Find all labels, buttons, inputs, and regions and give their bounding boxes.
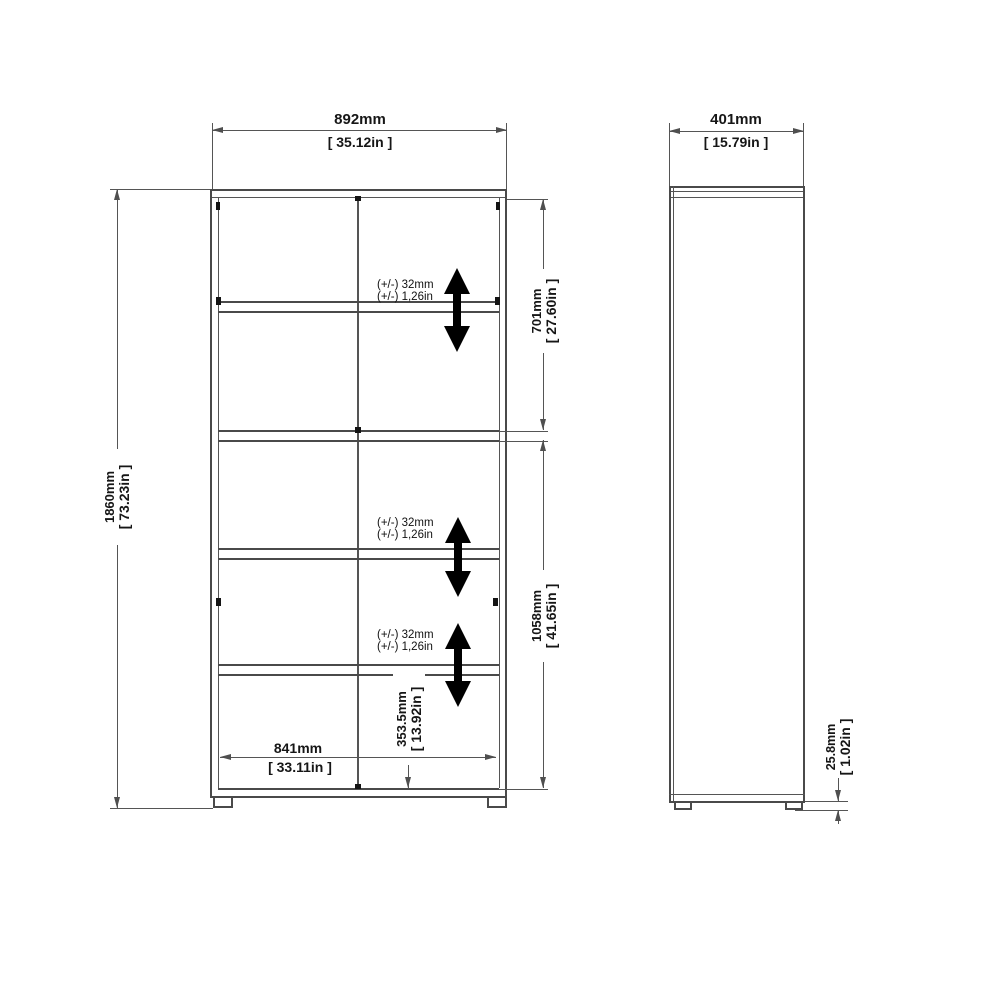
side-top-panel-bottom (669, 197, 805, 198)
front-bottom-edge (210, 796, 507, 798)
upper-section-label-mm: 701mm (529, 269, 544, 353)
shelf-adjust-double-arrow-icon (444, 268, 470, 352)
dimension-line (212, 130, 507, 131)
dimension-line (220, 757, 496, 758)
dimension-arrowhead (793, 128, 804, 134)
arrow-up-head (445, 517, 471, 543)
dimension-arrowhead (212, 127, 223, 133)
front-width-label-in: [ 35.12in ] (310, 134, 410, 150)
shelf-2-top-extension (499, 431, 548, 432)
dimension-arrowhead (496, 127, 507, 133)
shelf-adjust-double-arrow-icon (445, 517, 471, 597)
shelf-adjustment-note-mm: (+/-) 32mm (377, 630, 434, 642)
dimension-arrowhead (540, 419, 546, 430)
front-width-label-mm: 892mm (310, 112, 410, 128)
upper-section-label-in: [ 27.60in ] (544, 269, 559, 353)
lower-section-label: 1058mm [ 41.65in ] (528, 570, 560, 662)
dimension-arrowhead (485, 754, 496, 760)
front-right-outer-edge (505, 189, 507, 796)
arrow-down-head (445, 571, 471, 597)
side-right-outer-edge (803, 186, 805, 803)
shelf-2-fixed-bottom-line (218, 440, 499, 442)
front-right-foot (487, 796, 507, 808)
side-left-foot (674, 801, 692, 810)
shelf-pin-mark (216, 598, 221, 606)
seam-dot-top (355, 196, 361, 201)
side-top-panel-line (669, 191, 805, 192)
lower-section-label-in: [ 41.65in ] (544, 570, 559, 662)
dimension-arrowhead (220, 754, 231, 760)
inner-width-label-mm: 841mm (248, 741, 348, 755)
shelf-adjustment-note-in: (+/-) 1,26in (377, 292, 434, 304)
side-left-outer-edge (669, 186, 671, 803)
bottom-compartment-label: 353.5mm [ 13.92in ] (393, 673, 425, 765)
front-height-label-mm: 1860mm (102, 449, 117, 545)
shelf-pin-mark (216, 202, 220, 210)
dimension-line (669, 131, 804, 132)
lower-section-label-mm: 1058mm (529, 570, 544, 662)
seam-dot-middle (355, 427, 361, 433)
side-right-foot (785, 801, 803, 810)
bookcase-dimension-drawing: 892mm [ 35.12in ] 1860mm [ 73.23in ] 701… (0, 0, 1000, 1000)
shelf-adjustment-note-in: (+/-) 1,26in (377, 530, 434, 542)
arrow-up-head (445, 623, 471, 649)
shelf-adjustment-note-mm: (+/-) 32mm (377, 518, 434, 530)
side-depth-label-in: [ 15.79in ] (686, 134, 786, 150)
arrow-down-head (445, 681, 471, 707)
dimension-arrowhead (114, 189, 120, 200)
bottom-compartment-label-in: [ 13.92in ] (409, 673, 424, 765)
front-back-panel-seam (357, 197, 359, 788)
dimension-arrowhead (540, 199, 546, 210)
shelf-pin-mark (216, 297, 221, 305)
side-top-edge (669, 186, 805, 188)
arrow-stem (453, 292, 461, 328)
shelf-adjust-double-arrow-icon (445, 623, 471, 707)
shelf-adjustment-note-1: (+/-) 32mm (+/-) 1,26in (377, 280, 434, 303)
dimension-arrowhead (669, 128, 680, 134)
front-left-outer-edge (210, 189, 212, 796)
upper-section-label: 701mm [ 27.60in ] (528, 269, 560, 353)
shelf-pin-mark (496, 202, 500, 210)
inner-width-label-in: [ 33.11in ] (250, 760, 350, 774)
shelf-adjustment-note-in: (+/-) 1,26in (377, 642, 434, 654)
front-left-inner-edge (218, 197, 219, 788)
front-height-label-in: [ 73.23in ] (117, 449, 132, 545)
front-top-edge (210, 189, 507, 191)
extension-line (805, 801, 848, 802)
dimension-arrowhead (540, 777, 546, 788)
side-left-inner-line (673, 186, 674, 803)
seam-dot-bottom (355, 784, 361, 789)
dimension-arrowhead (540, 440, 546, 451)
dimension-arrowhead (835, 790, 841, 801)
arrow-up-head (444, 268, 470, 294)
front-height-label: 1860mm [ 73.23in ] (101, 449, 133, 545)
shelf-adjustment-note-2: (+/-) 32mm (+/-) 1,26in (377, 518, 434, 541)
foot-height-label-in: [ 1.02in ] (838, 717, 852, 777)
dimension-arrowhead (835, 810, 841, 821)
arrow-stem (454, 541, 462, 573)
side-depth-label-mm: 401mm (686, 112, 786, 128)
dimension-arrowhead (405, 777, 411, 788)
foot-height-label: 25.8mm [ 1.02in ] (823, 717, 853, 777)
bottom-compartment-label-mm: 353.5mm (394, 673, 409, 765)
extension-line (110, 189, 210, 190)
arrow-stem (454, 647, 462, 683)
dimension-arrowhead (114, 797, 120, 808)
extension-line (110, 808, 213, 809)
shelf-adjustment-note-mm: (+/-) 32mm (377, 280, 434, 292)
front-right-inner-edge (499, 197, 500, 788)
side-bottom-panel-line (669, 794, 805, 795)
front-bottom-extension-line (499, 789, 548, 790)
arrow-down-head (444, 326, 470, 352)
shelf-pin-mark (493, 598, 498, 606)
front-left-foot (213, 796, 233, 808)
shelf-adjustment-note-3: (+/-) 32mm (+/-) 1,26in (377, 630, 434, 653)
foot-height-label-mm: 25.8mm (824, 717, 838, 777)
shelf-pin-mark (495, 297, 500, 305)
